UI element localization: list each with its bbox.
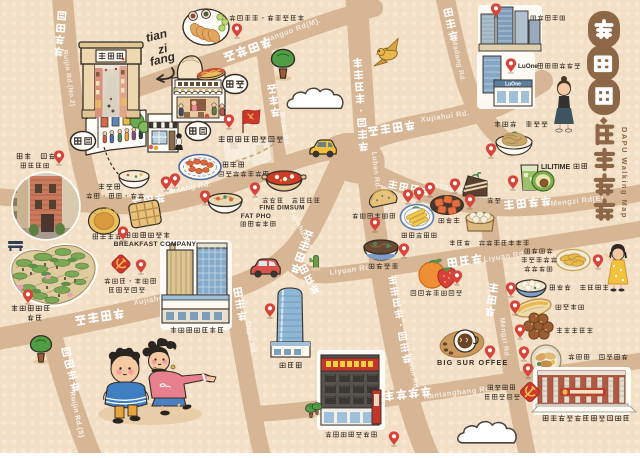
svg-text:BREAKFAST COMPANY: BREAKFAST COMPANY (114, 241, 197, 248)
svg-text:LILITIME: LILITIME (541, 164, 570, 171)
svg-text:BIG SUR OFFEE: BIG SUR OFFEE (437, 358, 509, 367)
svg-text:FAT PHO: FAT PHO (241, 213, 272, 220)
svg-text:FINE DIMSUM: FINE DIMSUM (259, 205, 304, 212)
svg-text:LuOne: LuOne (518, 63, 538, 70)
svg-text:LuOne: LuOne (505, 82, 521, 88)
svg-text:DAPU Walking Map: DAPU Walking Map (620, 127, 629, 219)
